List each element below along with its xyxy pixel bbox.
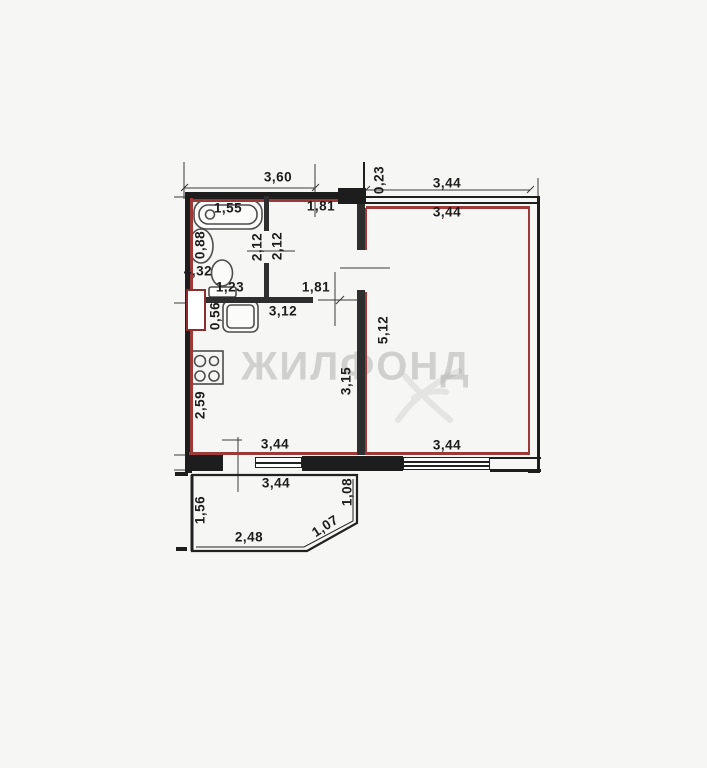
dimension-label: 1,81 (307, 199, 335, 214)
dimension-label: 0,56 (208, 302, 223, 330)
wall-bottom-b (302, 456, 403, 471)
dimension-label: 3,44 (433, 205, 461, 220)
dimension-label: 4,32 (184, 264, 212, 279)
dimension-label: 0,88 (193, 231, 208, 259)
wall-top-right-outer (362, 196, 540, 198)
dimension-label: 2,48 (235, 530, 263, 545)
dimension-label: 2,12 (270, 232, 285, 260)
watermark-logo-swoosh (398, 371, 459, 420)
wall-hall-living-upper (357, 204, 365, 250)
dimension-label: 3,44 (261, 437, 289, 452)
living-window-pane-1 (404, 461, 489, 463)
dimension-label: 3,15 (339, 367, 354, 395)
kitchen-window (255, 457, 302, 468)
living-window-pane-2 (404, 465, 489, 467)
dimension-label: 1,56 (193, 496, 208, 524)
dimension-label: 0,23 (372, 166, 387, 194)
dimension-label: 1,81 (302, 280, 330, 295)
stove-hob-icon (192, 351, 223, 384)
wall-bath-hall-lower (264, 263, 269, 300)
wall-hall-living-red-upper (365, 208, 367, 250)
dimension-label: 2,59 (193, 391, 208, 419)
dimension-label: 3,44 (262, 476, 290, 491)
wall-bottom-c-inner (490, 469, 541, 472)
floor-plan-page: ЖИЛФОНД (0, 0, 707, 768)
wall-hall-living-lower (357, 290, 365, 455)
dimension-label: 2,12 (250, 233, 265, 261)
dimension-label: 3,44 (433, 438, 461, 453)
dimension-label: 3,12 (269, 304, 297, 319)
dimension-label: 3,60 (264, 170, 292, 185)
plan-linework (0, 0, 707, 768)
dimension-label: 5,12 (376, 316, 391, 344)
wall-hall-living-red-lower (365, 292, 367, 452)
dimension-label: 1,55 (214, 201, 242, 216)
entrance-door (186, 289, 206, 331)
kitchen-window-pane (256, 462, 301, 464)
dimension-label: 1,23 (216, 280, 244, 295)
living-room-window (403, 457, 490, 470)
wall-bottom-c-outer (490, 457, 541, 459)
wall-bath-hall-upper (264, 196, 269, 231)
washing-machine-icon (223, 301, 258, 332)
neighbour-wall-stubs (175, 472, 188, 551)
dimension-label: 1,08 (340, 478, 355, 506)
wall-right (537, 196, 540, 473)
wall-right-red (528, 206, 530, 455)
dimension-label: 3,44 (433, 176, 461, 191)
wall-bottom-a (185, 455, 223, 471)
